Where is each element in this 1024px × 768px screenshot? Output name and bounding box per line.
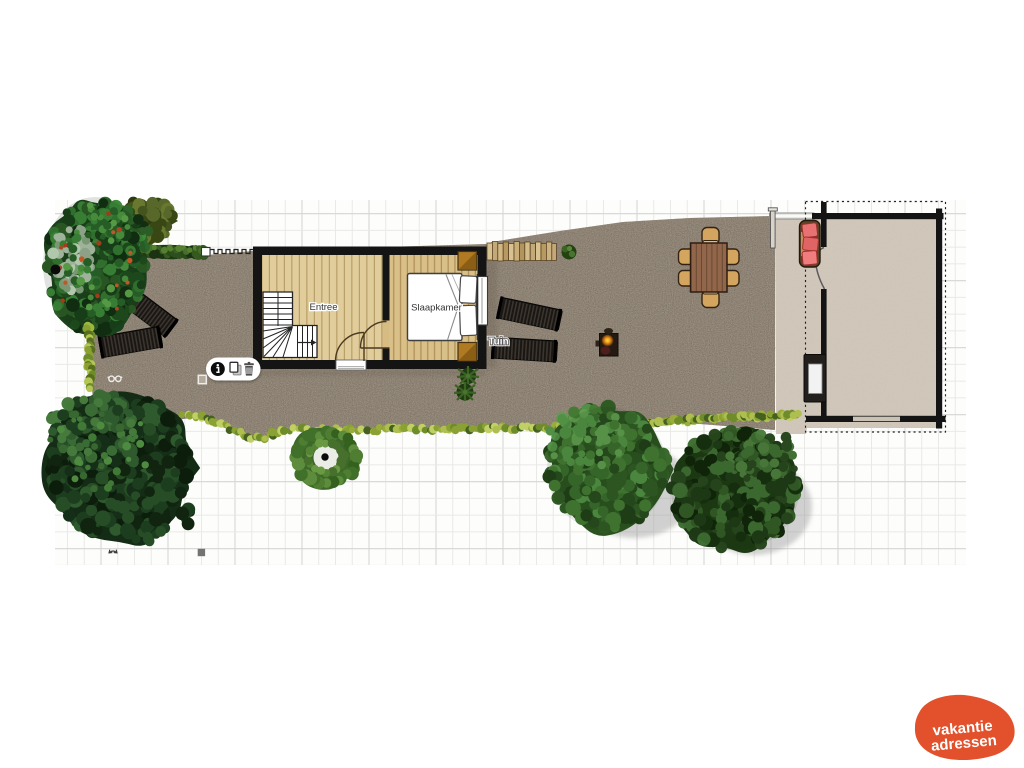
svg-text:Tuin: Tuin <box>488 337 508 348</box>
svg-text:Entree: Entree <box>310 302 338 313</box>
svg-text:Slaapkamer: Slaapkamer <box>411 303 462 314</box>
